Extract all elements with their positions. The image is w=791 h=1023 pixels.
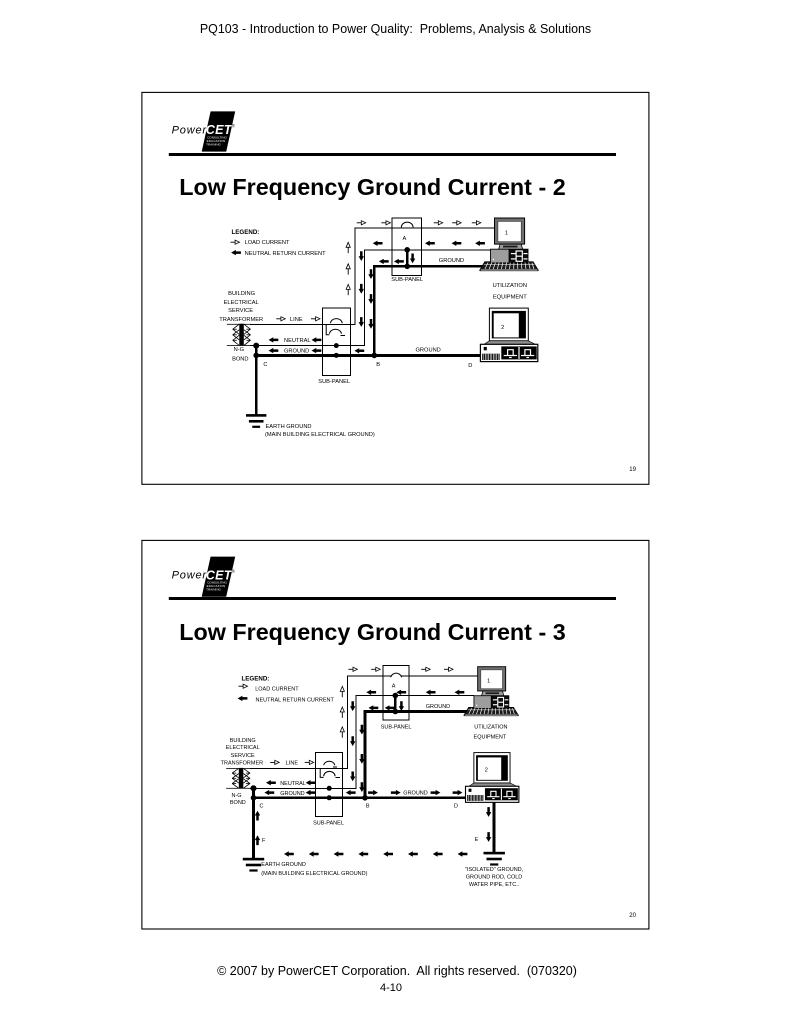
- svg-text:NEUTRAL: NEUTRAL: [280, 781, 306, 787]
- svg-text:E: E: [475, 837, 479, 843]
- svg-text:NEUTRAL RETURN CURRENT: NEUTRAL RETURN CURRENT: [256, 698, 335, 704]
- svg-text:D: D: [454, 804, 458, 810]
- svg-text:N-G: N-G: [232, 793, 242, 799]
- svg-text:LINE: LINE: [286, 761, 299, 767]
- svg-text:SERVICE: SERVICE: [231, 753, 255, 759]
- svg-text:SUB-PANEL: SUB-PANEL: [313, 821, 344, 827]
- svg-text:WATER PIPE, ETC..: WATER PIPE, ETC..: [469, 882, 520, 888]
- svg-text:A: A: [392, 684, 396, 690]
- svg-text:GROUND: GROUND: [280, 791, 304, 797]
- svg-text:F: F: [262, 838, 266, 844]
- svg-text:SUB-PANEL: SUB-PANEL: [381, 725, 412, 731]
- svg-text:UTILIZATION: UTILIZATION: [474, 725, 507, 731]
- svg-text:TRANSFORMER: TRANSFORMER: [221, 761, 264, 767]
- svg-text:"ISOLATED" GROUND,: "ISOLATED" GROUND,: [465, 867, 524, 873]
- svg-text:GROUND: GROUND: [426, 704, 450, 710]
- svg-text:GROUND: GROUND: [403, 791, 427, 797]
- svg-text:B: B: [366, 803, 370, 809]
- svg-text:Power: Power: [172, 570, 208, 582]
- svg-text:LOAD CURRENT: LOAD CURRENT: [255, 686, 299, 692]
- svg-text:LEGEND:: LEGEND:: [242, 675, 270, 682]
- svg-text:1: 1: [487, 679, 490, 685]
- svg-text:EARTH GROUND: EARTH GROUND: [261, 862, 306, 868]
- svg-text:(MAIN BUILDING ELECTRICAL GROU: (MAIN BUILDING ELECTRICAL GROUND): [261, 871, 367, 877]
- svg-text:®: ®: [232, 568, 236, 574]
- svg-text:C: C: [260, 803, 264, 809]
- svg-text:BUILDING: BUILDING: [230, 738, 256, 744]
- svg-text:GROUND ROD, COLD: GROUND ROD, COLD: [466, 875, 523, 881]
- svg-text:20: 20: [629, 913, 636, 919]
- svg-text:Low Frequency Ground Current -: Low Frequency Ground Current - 3: [179, 619, 566, 645]
- svg-text:EQUIPMENT: EQUIPMENT: [474, 735, 507, 741]
- svg-text:2: 2: [485, 768, 488, 774]
- svg-text:BOND: BOND: [230, 800, 246, 806]
- svg-text:ELECTRICAL: ELECTRICAL: [226, 745, 260, 751]
- svg-text:TRAINING: TRAINING: [206, 588, 221, 592]
